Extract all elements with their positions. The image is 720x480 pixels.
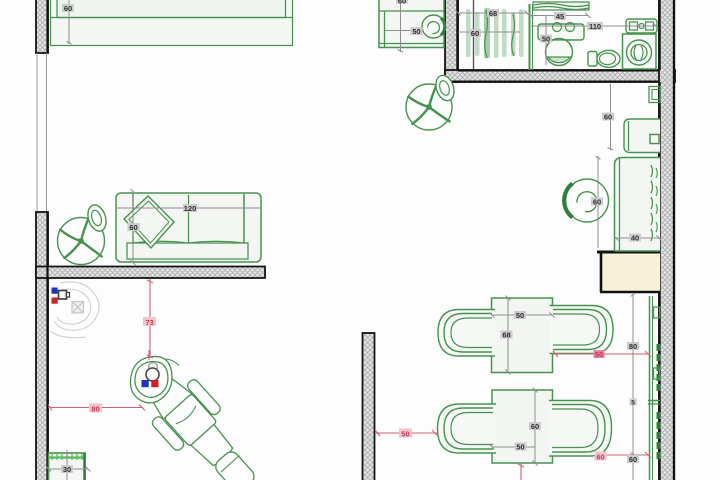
svg-text:40: 40 bbox=[631, 234, 639, 243]
svg-text:50: 50 bbox=[516, 443, 524, 452]
svg-text:60: 60 bbox=[129, 223, 137, 232]
svg-text:60: 60 bbox=[629, 455, 637, 464]
svg-text:73: 73 bbox=[145, 318, 153, 327]
svg-text:60: 60 bbox=[593, 198, 601, 207]
svg-text:68: 68 bbox=[502, 331, 510, 340]
svg-text:120: 120 bbox=[184, 204, 197, 213]
svg-text:60: 60 bbox=[64, 4, 72, 13]
svg-text:60: 60 bbox=[596, 453, 604, 462]
svg-text:50: 50 bbox=[595, 350, 603, 359]
svg-text:60: 60 bbox=[398, 0, 406, 5]
svg-text:50: 50 bbox=[401, 430, 409, 439]
svg-text:80: 80 bbox=[91, 405, 99, 414]
svg-text:45: 45 bbox=[556, 12, 564, 21]
svg-text:50: 50 bbox=[412, 27, 420, 36]
svg-text:50: 50 bbox=[516, 311, 524, 320]
svg-text:30: 30 bbox=[63, 465, 71, 474]
svg-text:60: 60 bbox=[604, 113, 612, 122]
svg-text:68: 68 bbox=[489, 9, 497, 18]
svg-text:110: 110 bbox=[589, 22, 601, 31]
svg-text:80: 80 bbox=[629, 342, 637, 351]
svg-text:60: 60 bbox=[471, 29, 479, 38]
svg-text:50: 50 bbox=[542, 35, 550, 44]
svg-text:60: 60 bbox=[531, 422, 539, 431]
svg-text:5: 5 bbox=[631, 400, 635, 407]
